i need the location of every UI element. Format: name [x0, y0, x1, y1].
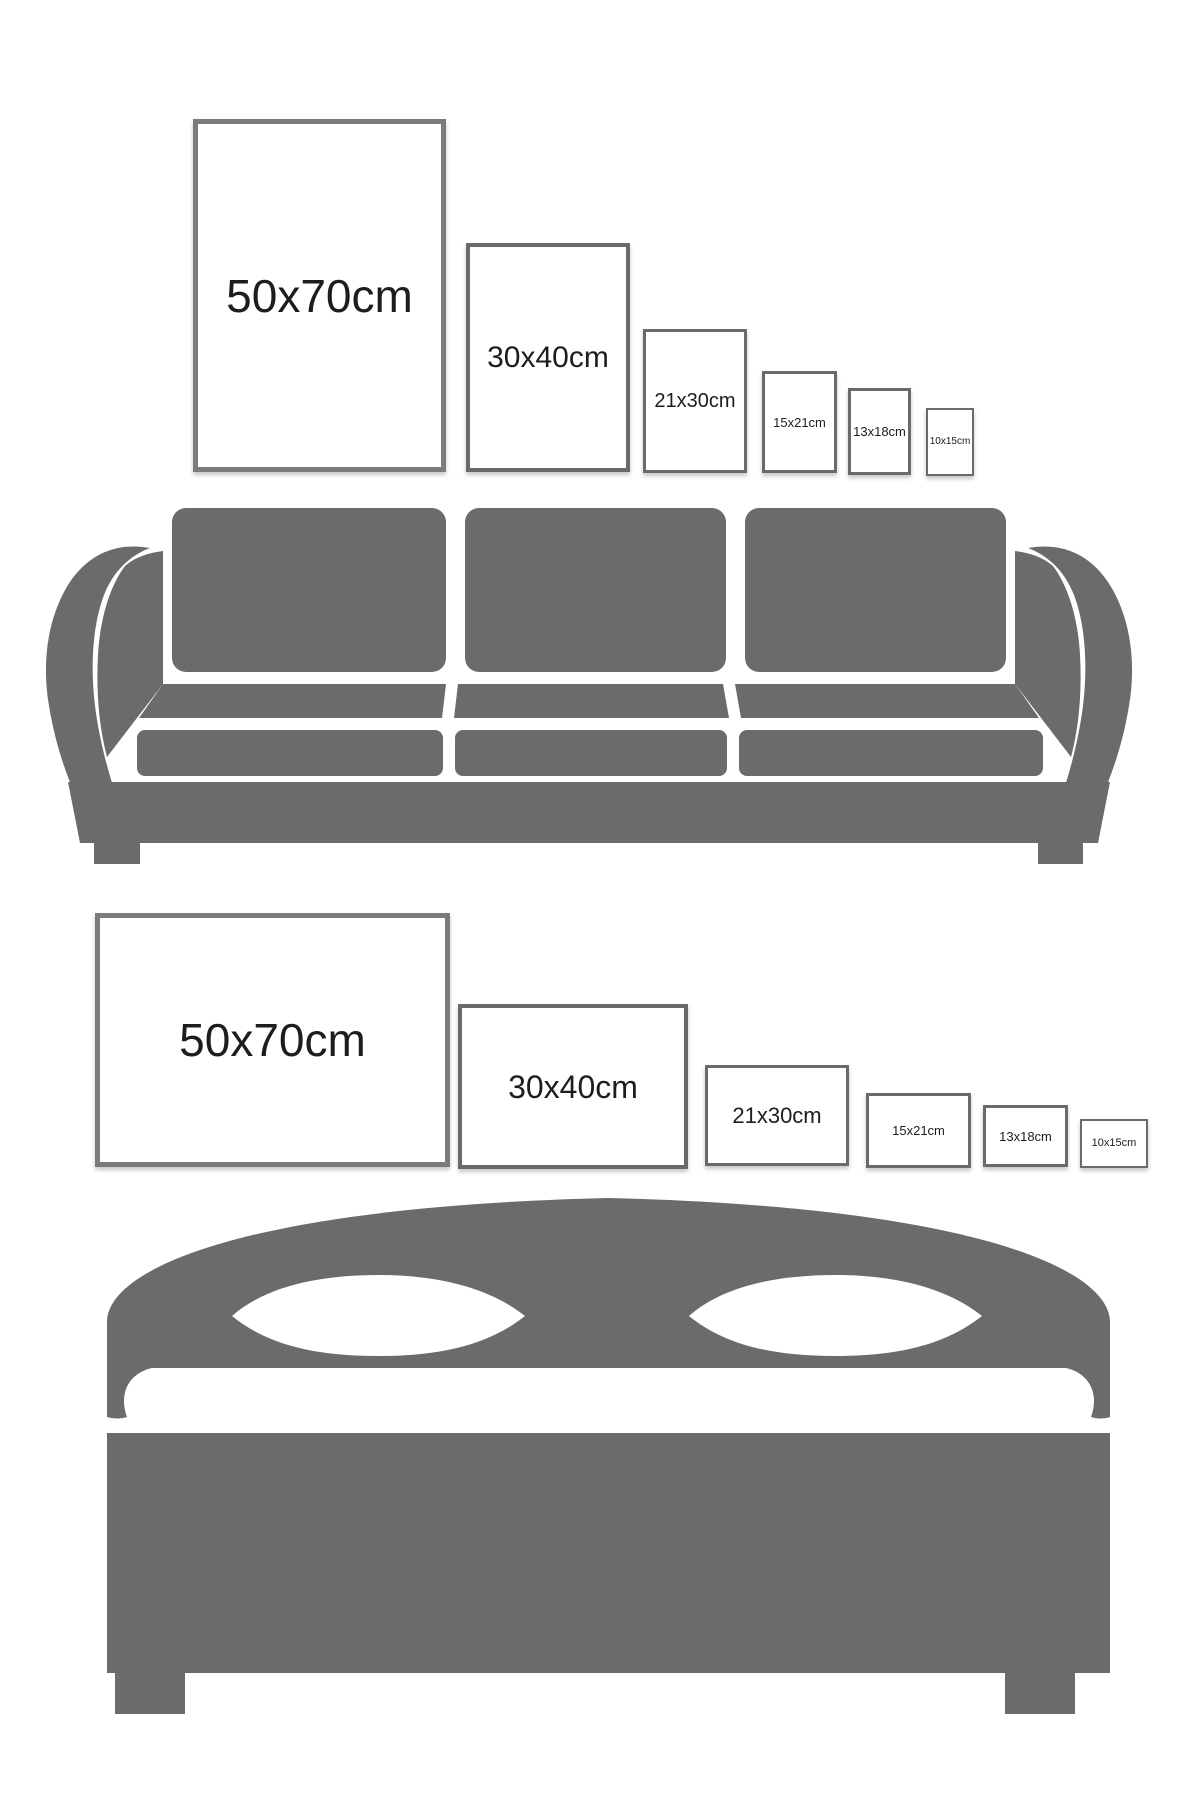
- size-frame-30x40cm-landscape: 30x40cm: [458, 1004, 688, 1169]
- size-frame-21x30cm-landscape: 21x30cm: [705, 1065, 849, 1166]
- size-frame-30x40cm-portrait: 30x40cm: [466, 243, 630, 472]
- size-frame-13x18cm-landscape: 13x18cm: [983, 1105, 1068, 1167]
- size-frame-50x70cm-landscape: 50x70cm: [95, 913, 450, 1167]
- size-frame-label: 50x70cm: [179, 1017, 366, 1063]
- size-frame-label: 30x40cm: [508, 1071, 638, 1103]
- size-frame-label: 30x40cm: [487, 343, 609, 373]
- size-guide-page: 50x70cm30x40cm21x30cm15x21cm13x18cm10x15…: [0, 0, 1200, 1800]
- size-frame-label: 10x15cm: [930, 437, 971, 447]
- size-frame-50x70cm-portrait: 50x70cm: [193, 119, 446, 472]
- size-frame-21x30cm-portrait: 21x30cm: [643, 329, 747, 473]
- size-frame-label: 13x18cm: [853, 425, 906, 438]
- size-frame-label: 21x30cm: [654, 391, 735, 411]
- size-frame-10x15cm-landscape: 10x15cm: [1080, 1119, 1148, 1168]
- size-frame-13x18cm-portrait: 13x18cm: [848, 388, 911, 475]
- size-frame-label: 15x21cm: [773, 416, 826, 429]
- size-frame-label: 13x18cm: [999, 1130, 1052, 1143]
- size-frame-label: 50x70cm: [226, 273, 413, 319]
- size-frames-layer: 50x70cm30x40cm21x30cm15x21cm13x18cm10x15…: [0, 0, 1200, 1800]
- size-frame-label: 10x15cm: [1092, 1138, 1137, 1149]
- size-frame-15x21cm-landscape: 15x21cm: [866, 1093, 971, 1168]
- size-frame-10x15cm-portrait: 10x15cm: [926, 408, 974, 476]
- size-frame-label: 21x30cm: [732, 1105, 821, 1127]
- size-frame-15x21cm-portrait: 15x21cm: [762, 371, 837, 473]
- size-frame-label: 15x21cm: [892, 1124, 945, 1137]
